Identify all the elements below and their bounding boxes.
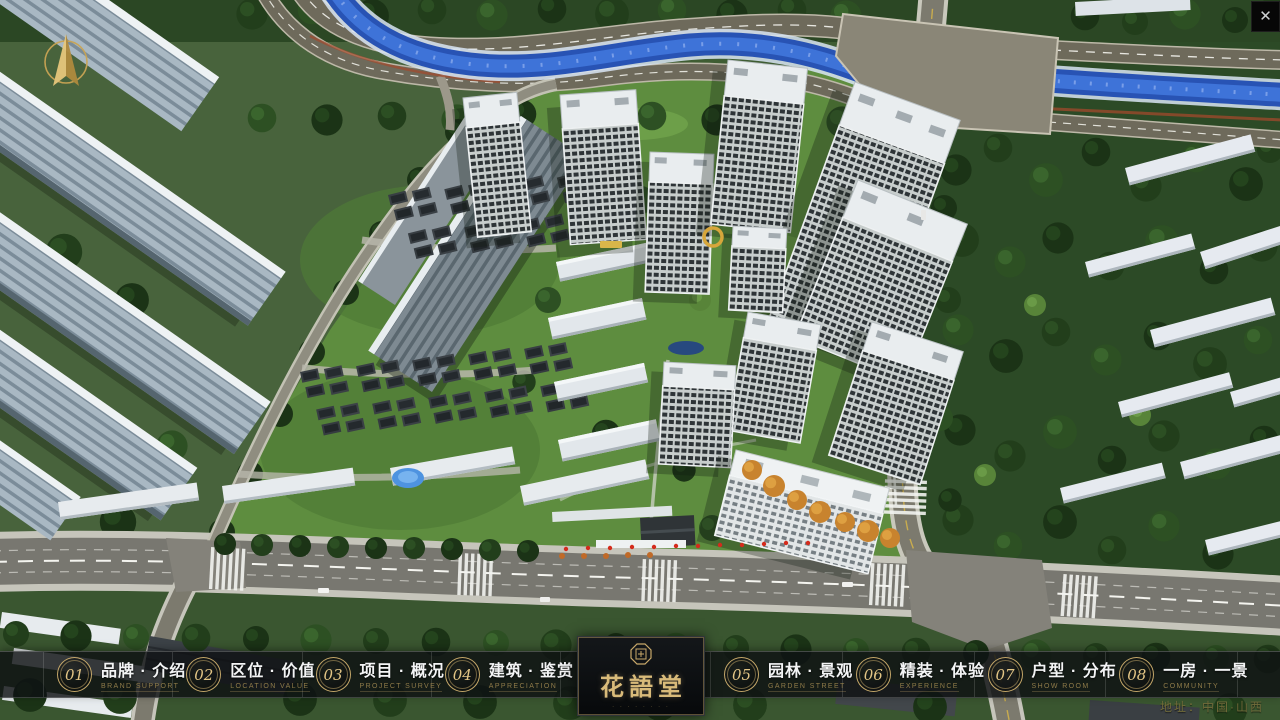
nav-item-subtitle: APPRECIATION [489, 683, 557, 692]
nav-item-number-badge: 03 [316, 657, 351, 692]
nav-item-subtitle: COMMUNITY [1163, 683, 1219, 692]
nav-item-number: 08 [1127, 666, 1146, 684]
nav-item-title: 区位 · 价值 [230, 657, 301, 681]
gold-feature [600, 241, 622, 248]
nav-item-number-badge: 04 [445, 657, 480, 692]
nav-item-number: 04 [453, 666, 472, 684]
nav-item-number: 06 [864, 666, 883, 684]
nav-item-07[interactable]: 07 户型 · 分布 SHOW ROOM [975, 652, 1107, 697]
project-tagline: · · · · · · · · [612, 704, 670, 710]
nav-item-number: 03 [323, 666, 342, 684]
nav-item-title: 户型 · 分布 [1032, 657, 1106, 681]
nav-item-title: 建筑 · 鉴赏 [489, 657, 560, 681]
close-icon: ✕ [1259, 8, 1272, 25]
compass-icon [38, 30, 96, 94]
nav-item-subtitle: EXPERIENCE [900, 683, 959, 692]
nav-group-left: 01 品牌 · 介绍 BRAND SUPPORT 02 区位 · 价值 LOCA… [43, 652, 561, 697]
nav-item-title: 园林 · 景观 [768, 657, 842, 681]
nav-item-number-badge: 05 [724, 657, 759, 692]
nav-item-06[interactable]: 06 精装 · 体验 EXPERIENCE [843, 652, 975, 697]
project-logo-panel[interactable]: 花語堂 · · · · · · · · [577, 636, 705, 716]
nav-item-title: 品牌 · 介绍 [101, 657, 172, 681]
nav-item-number-badge: 07 [988, 657, 1023, 692]
project-address: 地址：中国·山西 [1160, 698, 1264, 715]
nav-item-subtitle: BRAND SUPPORT [101, 683, 179, 692]
project-name: 花語堂 [595, 667, 687, 702]
nav-item-number: 05 [732, 666, 751, 684]
nav-item-05[interactable]: 05 园林 · 景观 GARDEN STREET [710, 652, 843, 697]
nav-item-03[interactable]: 03 项目 · 概况 PROJECT SURVEY [303, 652, 432, 697]
close-button[interactable]: ✕ [1251, 1, 1280, 32]
nav-item-title: 精装 · 体验 [900, 657, 974, 681]
nav-item-number-badge: 08 [1119, 657, 1154, 692]
nav-item-04[interactable]: 04 建筑 · 鉴赏 APPRECIATION [432, 652, 561, 697]
nav-item-subtitle: LOCATION VALUE [230, 683, 309, 692]
nav-item-number-badge: 02 [186, 657, 221, 692]
nav-item-01[interactable]: 01 品牌 · 介绍 BRAND SUPPORT [44, 652, 173, 697]
nav-group-right: 05 园林 · 景观 GARDEN STREET 06 精装 · 体验 EXPE… [710, 652, 1238, 697]
nav-item-title: 一房 · 一景 [1163, 657, 1237, 681]
app-window: ✕ 01 品牌 · 介绍 BRAND SUPPORT 02 区位 · 价值 LO… [0, 0, 1280, 720]
nav-item-subtitle: SHOW ROOM [1032, 683, 1090, 692]
nav-item-08[interactable]: 08 一房 · 一景 COMMUNITY [1106, 652, 1238, 697]
nav-item-title: 项目 · 概况 [360, 657, 431, 681]
nav-item-subtitle: GARDEN STREET [768, 683, 846, 692]
seal-icon [630, 643, 652, 665]
nav-item-number-badge: 06 [856, 657, 891, 692]
nav-item-subtitle: PROJECT SURVEY [360, 683, 443, 692]
nav-item-number: 01 [65, 666, 84, 684]
nav-item-number: 07 [995, 666, 1014, 684]
nav-item-number: 02 [194, 666, 213, 684]
masterplan-render [0, 0, 1280, 720]
nav-item-number-badge: 01 [57, 657, 92, 692]
nav-item-02[interactable]: 02 区位 · 价值 LOCATION VALUE [173, 652, 302, 697]
